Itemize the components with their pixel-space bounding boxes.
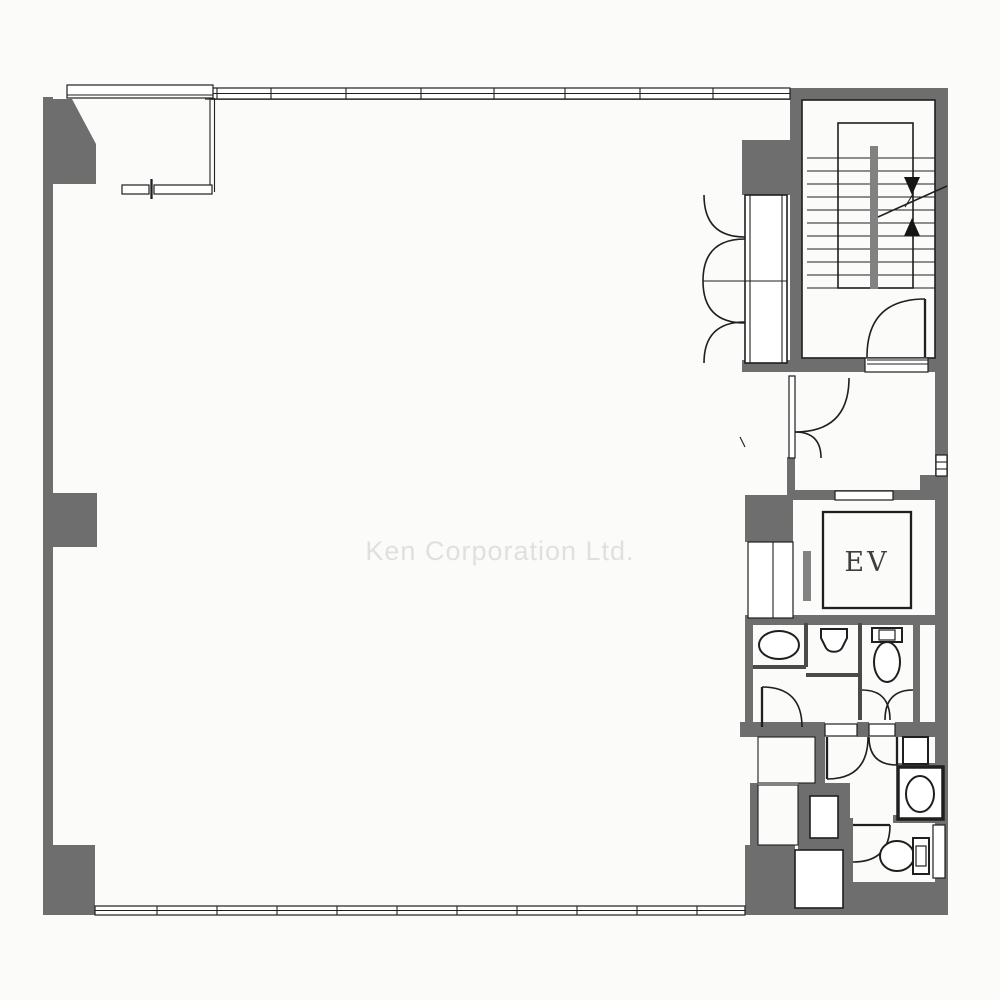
bottom-window-band (95, 906, 745, 915)
small-room-right-wall (843, 818, 853, 915)
basin-room-door (762, 687, 802, 727)
ev-pier (745, 495, 793, 542)
hall-top-wall-c (895, 722, 935, 737)
vestibule-double-door (795, 378, 849, 458)
basin-room-2 (898, 767, 943, 819)
wash-basin (906, 776, 934, 812)
hall-door-right (869, 737, 897, 765)
stair-break-tick (905, 194, 913, 207)
hall-left-wall (815, 737, 825, 785)
wall-niche (933, 825, 945, 878)
stair-door (865, 299, 928, 372)
wash-basin (759, 631, 799, 659)
hall-top-wall-b (857, 722, 869, 737)
mid-left-pier (53, 493, 97, 547)
watermark: Ken Corporation Ltd. (365, 536, 634, 566)
bottom-left-pier (45, 845, 95, 915)
bottom-wall-under-room (795, 908, 843, 915)
storage-divider-wall (750, 783, 758, 848)
wc-2 (853, 825, 945, 878)
stair-bottom-wall-a (800, 358, 865, 372)
hall-door-left (827, 737, 868, 779)
upper-core-pier (742, 140, 792, 195)
hall-door-slot (825, 724, 857, 736)
storage-room (758, 737, 815, 783)
ev-door-bar (803, 551, 811, 601)
urinal (821, 629, 847, 652)
pipe-shaft (748, 542, 793, 618)
wall-tick (740, 437, 745, 447)
top-left-corner-pier (53, 99, 96, 184)
bay-sliding-panel (122, 185, 149, 194)
slop-sink (810, 796, 838, 838)
bottom-core-pier (745, 845, 795, 915)
storage-room-2 (758, 785, 798, 845)
closet (703, 195, 787, 363)
ev-hall-door-slot (835, 491, 893, 500)
stairwell (802, 100, 947, 372)
closet-door-swings (703, 195, 745, 363)
toilet-stall (862, 628, 913, 720)
restroom-left-wall (745, 623, 753, 725)
vestibule-door-jamb (789, 376, 795, 458)
toilet-bowl (874, 642, 900, 682)
stair-up-arrow-icon (904, 218, 920, 236)
restrooms (753, 623, 913, 727)
small-service-room (795, 850, 843, 908)
stair-left-wall (790, 90, 802, 372)
bottom-right-wall (853, 882, 948, 915)
elevator-label: EV (844, 547, 889, 578)
walls (43, 88, 948, 915)
wc-stall-right-wall (913, 625, 920, 722)
stair-center-rail (870, 146, 878, 289)
hall-door-slot (869, 724, 895, 736)
left-wall (43, 97, 53, 915)
stair-down-arrow-icon (904, 177, 920, 195)
hall-top-wall-a (740, 722, 825, 737)
vestibule-window (936, 455, 947, 476)
vestibule (740, 376, 849, 458)
top-window-band (212, 88, 790, 99)
closet-body (745, 195, 787, 363)
floor-plan: EV (0, 0, 1000, 1000)
shelf-unit (903, 737, 928, 764)
bay-sliding-panel (154, 185, 212, 194)
toilet-bowl (880, 841, 914, 871)
stair-bottom-wall-b (928, 358, 948, 372)
